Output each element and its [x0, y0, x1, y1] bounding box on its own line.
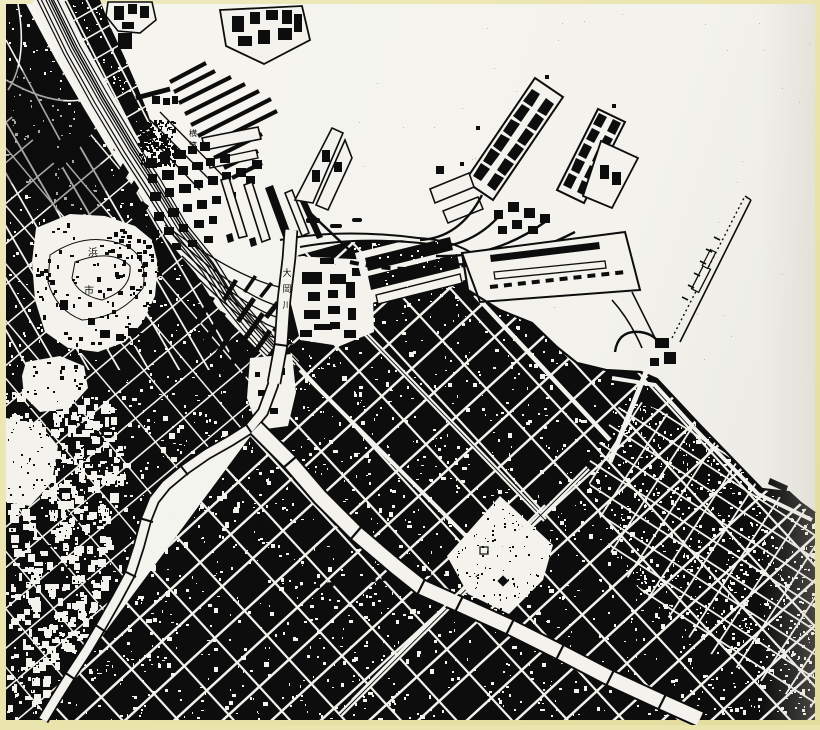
svg-text:大: 大 — [282, 267, 291, 278]
svg-text:濱: 濱 — [189, 140, 197, 150]
svg-text:岡: 岡 — [282, 284, 291, 294]
svg-text:横: 横 — [189, 128, 197, 138]
svg-text:市: 市 — [84, 284, 94, 297]
svg-text:川: 川 — [282, 300, 291, 310]
